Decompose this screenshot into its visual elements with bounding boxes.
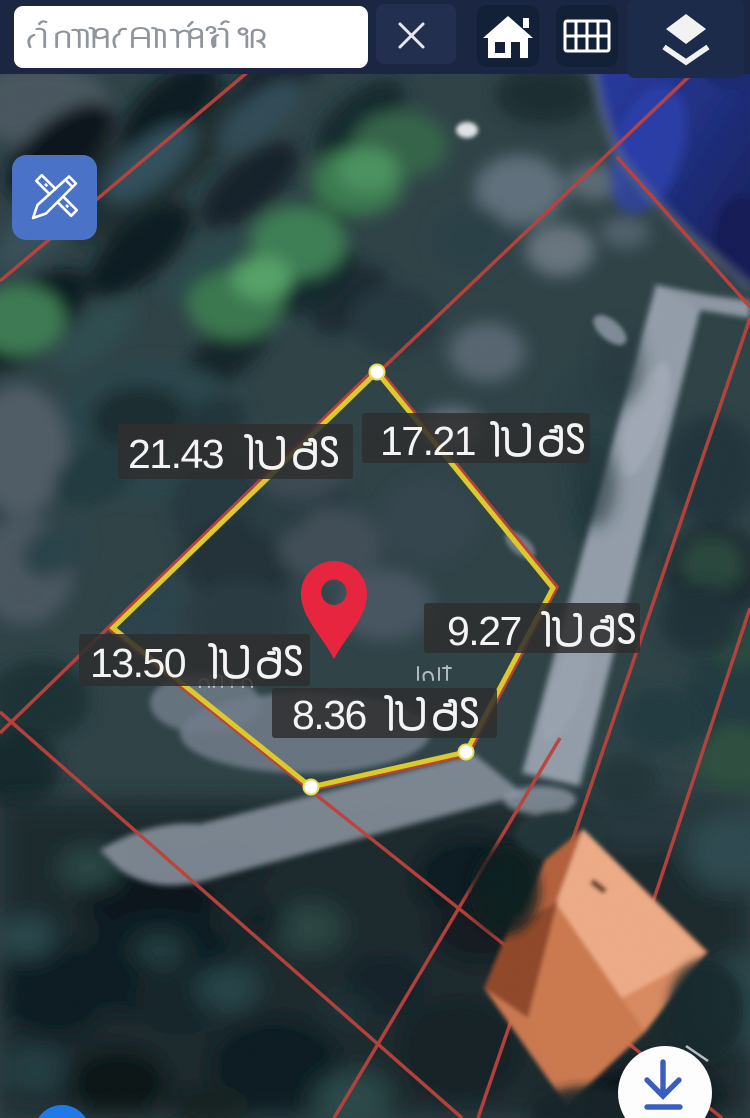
svg-text:9.27: 9.27 [447,608,521,654]
svg-text:8.36: 8.36 [292,692,366,738]
svg-text:21.43: 21.43 [128,431,223,477]
svg-text:17.21: 17.21 [380,418,475,464]
svg-text:13.50: 13.50 [90,640,186,686]
